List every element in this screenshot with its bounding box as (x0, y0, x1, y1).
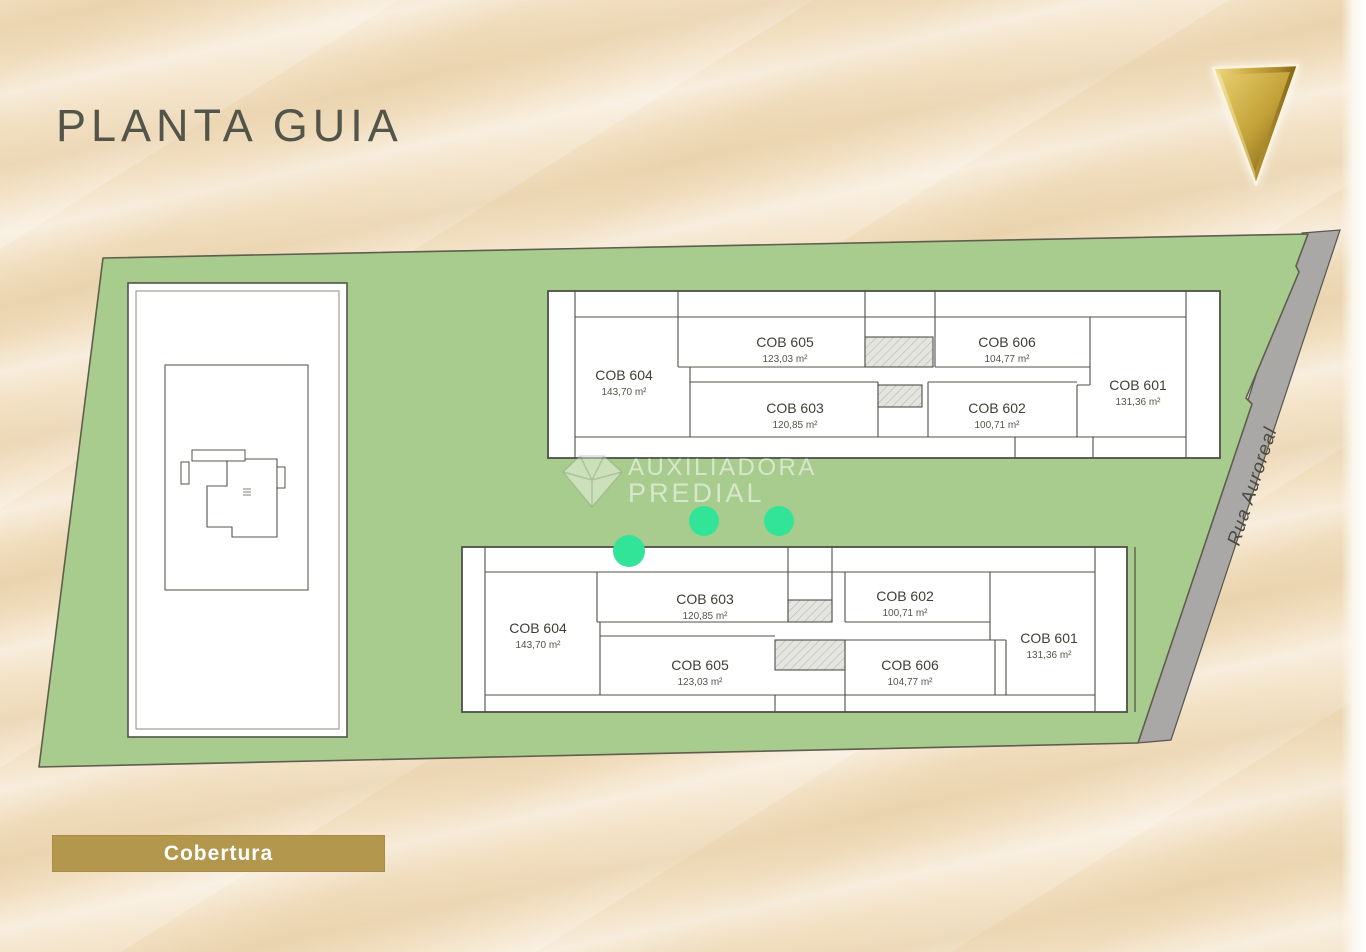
location-marker (613, 535, 645, 567)
watermark-line2: PREDIAL (628, 478, 765, 508)
unit-label-bottom-cob606: COB 606 104,77 m² (881, 657, 939, 688)
unit-label-top-cob602: COB 602 100,71 m² (968, 400, 1026, 431)
unit-id: COB 606 (881, 657, 939, 673)
unit-id: COB 603 (766, 400, 824, 416)
unit-area: 100,71 m² (974, 420, 1020, 431)
unit-area: 143,70 m² (515, 640, 561, 651)
site-plan: Rua Auroreal COB 605 123,03 m² COB 606 (0, 0, 1366, 952)
watermark-line1: AUXILIADORA (628, 454, 817, 481)
unit-id: COB 606 (978, 334, 1036, 350)
unit-area: 143,70 m² (601, 387, 647, 398)
location-marker (764, 506, 794, 536)
unit-label-bottom-cob604: COB 604 143,70 m² (509, 620, 567, 651)
unit-id: COB 605 (671, 657, 729, 673)
location-marker (689, 506, 719, 536)
page-edge (1341, 0, 1366, 952)
unit-id: COB 604 (595, 367, 653, 383)
unit-label-bottom-cob602: COB 602 100,71 m² (876, 588, 934, 619)
unit-label-top-cob606: COB 606 104,77 m² (978, 334, 1036, 365)
unit-area: 120,85 m² (682, 611, 728, 622)
building-bottom-core-lower (775, 640, 845, 670)
side-structure-deck (192, 450, 245, 461)
unit-id: COB 602 (876, 588, 934, 604)
unit-id: COB 601 (1020, 630, 1078, 646)
unit-id: COB 602 (968, 400, 1026, 416)
legend-bar: Cobertura (52, 835, 385, 872)
unit-label-top-cob605: COB 605 123,03 m² (756, 334, 814, 365)
unit-area: 131,36 m² (1026, 650, 1072, 661)
unit-label-bottom-cob605: COB 605 123,03 m² (671, 657, 729, 688)
side-structure (128, 283, 347, 737)
unit-label-top-cob601: COB 601 131,36 m² (1109, 377, 1167, 408)
north-arrow-icon (1196, 48, 1316, 198)
page-background: PLANTA GUIA Rua Auroreal (0, 0, 1366, 952)
unit-id: COB 603 (676, 591, 734, 607)
unit-area: 104,77 m² (887, 677, 933, 688)
building-top: COB 605 123,03 m² COB 606 104,77 m² COB … (548, 291, 1220, 458)
unit-id: COB 605 (756, 334, 814, 350)
building-top-core-upper (865, 337, 933, 367)
unit-label-bottom-cob603: COB 603 120,85 m² (676, 591, 734, 622)
unit-area: 131,36 m² (1115, 397, 1161, 408)
unit-label-top-cob603: COB 603 120,85 m² (766, 400, 824, 431)
unit-label-bottom-cob601: COB 601 131,36 m² (1020, 630, 1078, 661)
unit-label-top-cob604: COB 604 143,70 m² (595, 367, 653, 398)
side-structure-bench-right (277, 467, 285, 488)
unit-area: 123,03 m² (762, 354, 808, 365)
building-bottom-core-upper (788, 600, 832, 622)
unit-id: COB 604 (509, 620, 567, 636)
legend-label: Cobertura (164, 842, 273, 866)
unit-id: COB 601 (1109, 377, 1167, 393)
unit-area: 123,03 m² (677, 677, 723, 688)
building-top-core-lower (878, 385, 922, 407)
side-structure-bench-left (181, 462, 189, 484)
unit-area: 120,85 m² (772, 420, 818, 431)
unit-area: 104,77 m² (984, 354, 1030, 365)
building-bottom: COB 603 120,85 m² COB 602 100,71 m² COB … (462, 547, 1135, 712)
unit-area: 100,71 m² (882, 608, 928, 619)
